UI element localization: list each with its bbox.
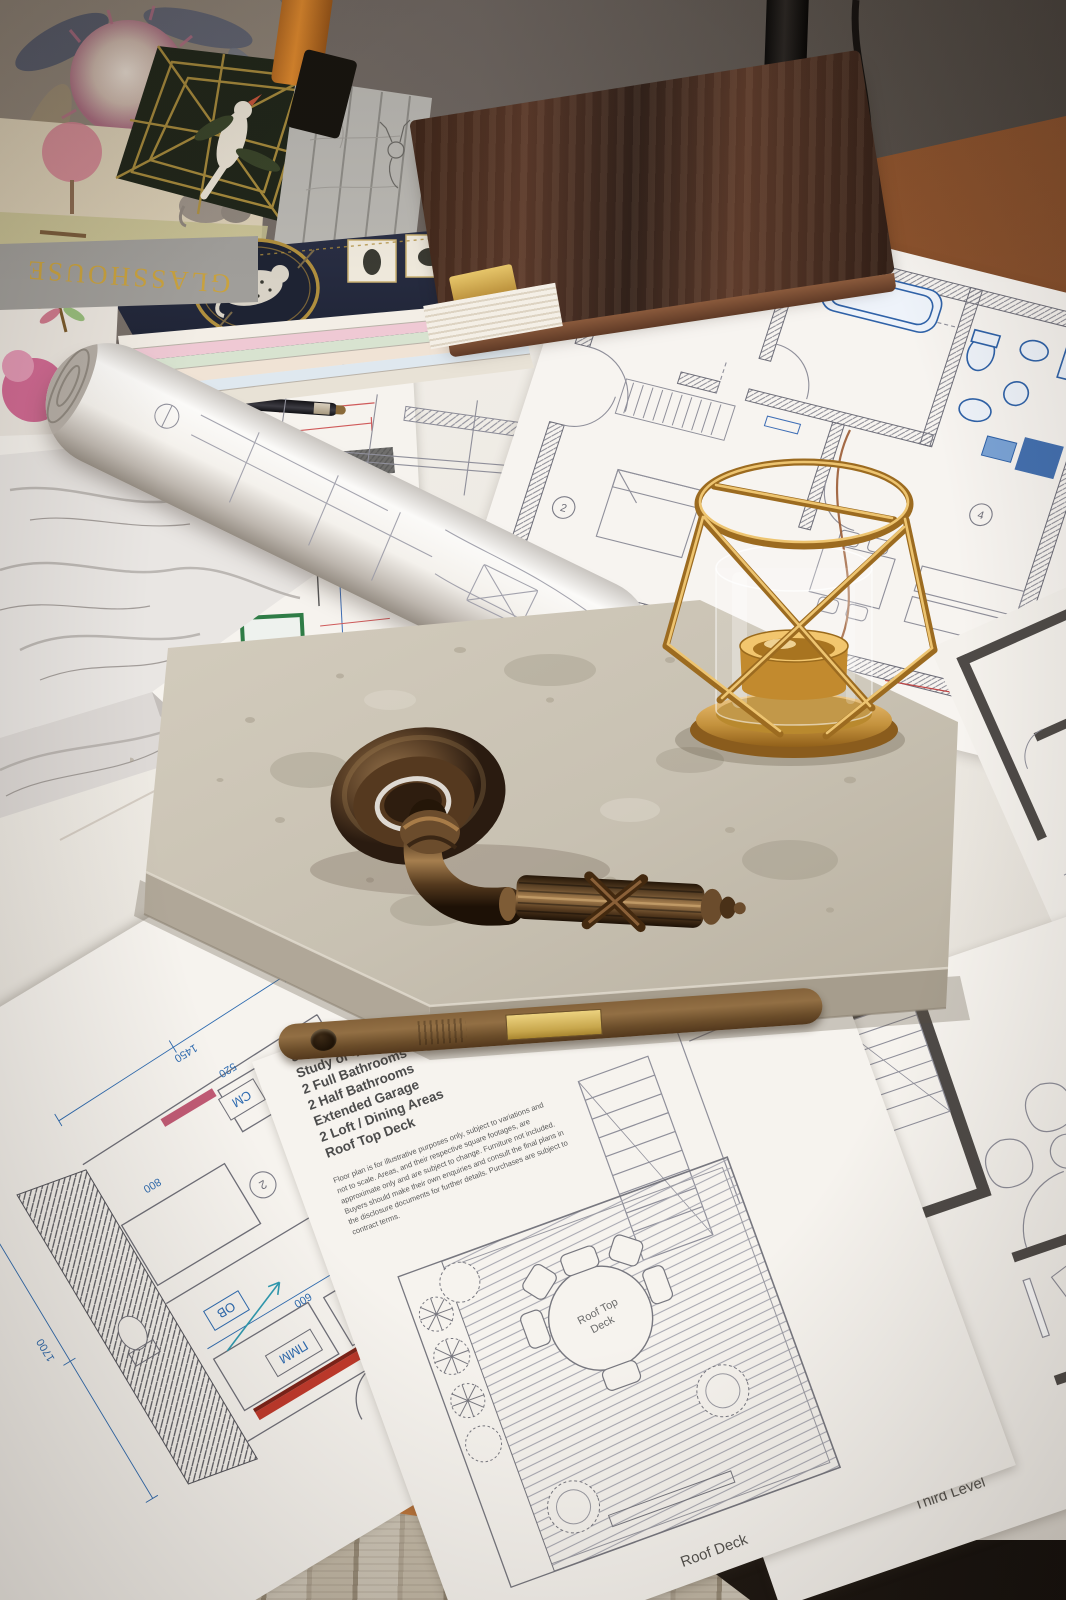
handle-neck — [400, 810, 517, 921]
roof-deck-plan: Roof Top Deck — [398, 1157, 840, 1587]
plate-stamp-smudge — [417, 1018, 467, 1045]
candle-holder — [628, 408, 978, 778]
circled-number: 2 — [559, 502, 569, 515]
brand-band-text-wrap: GLASSHOUSE — [2, 248, 254, 304]
handle-barrel — [515, 873, 747, 933]
dim: 800 — [141, 1175, 163, 1195]
desk-photo-scene: квартиры — [0, 0, 1066, 1600]
roof-deck-label: Roof Deck — [678, 1531, 750, 1571]
screw-hole — [310, 1028, 337, 1052]
dim: 1700 — [35, 1336, 58, 1363]
brand-text: GLASSHOUSE — [24, 253, 231, 298]
circled-ru: 2 — [256, 1177, 269, 1193]
latch-brass — [505, 1009, 602, 1041]
